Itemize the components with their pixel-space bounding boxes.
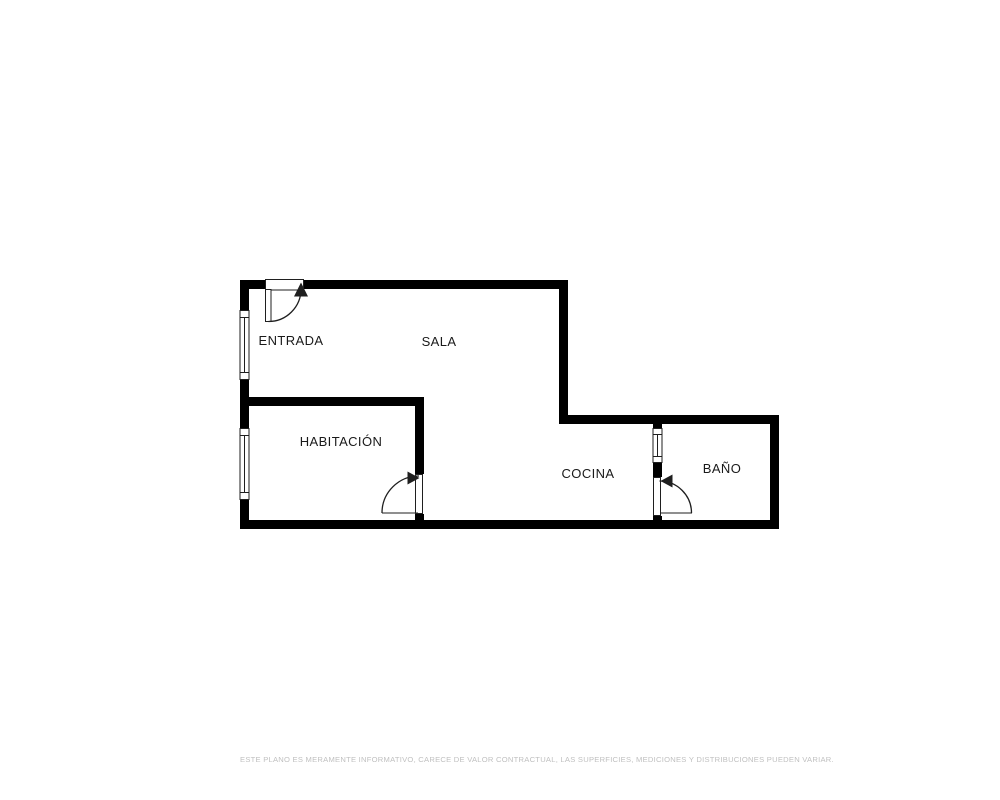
window-cocina-bano bbox=[652, 428, 663, 463]
room-label-bano: BAÑO bbox=[703, 461, 741, 476]
wall-bottom bbox=[240, 520, 779, 529]
wall-right bbox=[770, 415, 779, 529]
door-bano bbox=[652, 475, 692, 517]
door-entrada-threshold bbox=[266, 280, 304, 291]
wall-sala-step-vertical bbox=[559, 280, 568, 424]
room-label-entrada: ENTRADA bbox=[259, 333, 324, 348]
door-entrada bbox=[266, 280, 309, 322]
door-bano-leaf bbox=[654, 478, 661, 516]
door-habitacion bbox=[382, 472, 425, 515]
room-label-habitacion: HABITACIÓN bbox=[300, 434, 383, 449]
door-habitacion-leaf bbox=[416, 475, 423, 514]
floorplan-page: ENTRADA SALA HABITACIÓN COCINA BAÑO ESTE… bbox=[0, 0, 1000, 800]
room-label-sala: SALA bbox=[422, 334, 457, 349]
disclaimer-text: ESTE PLANO ES MERAMENTE INFORMATIVO, CAR… bbox=[240, 755, 834, 764]
walls bbox=[240, 280, 779, 529]
door-entrada-leaf bbox=[266, 290, 272, 322]
window-entrada bbox=[239, 310, 250, 380]
wall-sala-step-horizontal bbox=[559, 415, 779, 424]
wall-entrada-habitacion-divider bbox=[240, 397, 424, 406]
door-habitacion-swing-arc bbox=[382, 476, 419, 513]
floorplan-canvas: ENTRADA SALA HABITACIÓN COCINA BAÑO ESTE… bbox=[0, 0, 1000, 800]
door-bano-swing-arc bbox=[660, 481, 692, 513]
room-labels: ENTRADA SALA HABITACIÓN COCINA BAÑO bbox=[259, 333, 742, 481]
window-habitacion bbox=[239, 428, 250, 500]
room-label-cocina: COCINA bbox=[562, 466, 615, 481]
